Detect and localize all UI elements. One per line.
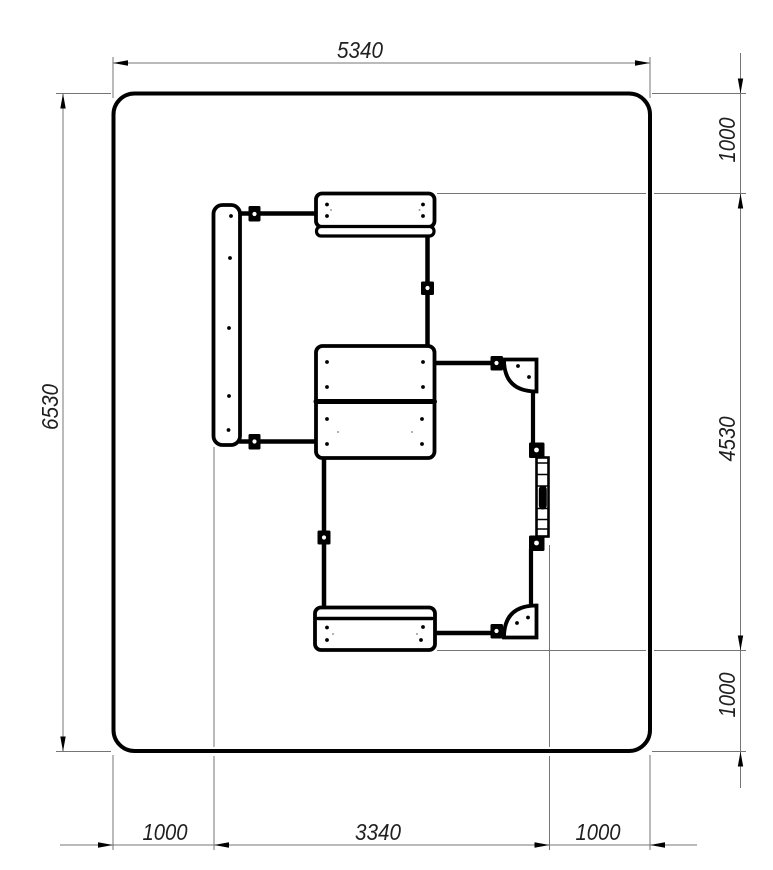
panel-left bbox=[214, 205, 241, 445]
dim-label-left-height: 6530 bbox=[37, 384, 63, 430]
post-clamp-hole bbox=[494, 629, 498, 633]
dim-label-right-equipment-height: 4530 bbox=[714, 417, 740, 462]
climber-ladder bbox=[537, 458, 549, 537]
ladder-grip-bar bbox=[539, 486, 547, 510]
post-clamp-hole bbox=[252, 439, 256, 443]
drawing-page: 5340 6530 1000 4530 1000 1000 3340 1000 bbox=[0, 0, 773, 870]
left-extension-lines bbox=[56, 94, 111, 752]
panel-top-edge-band bbox=[317, 227, 435, 237]
arrow-right-1 bbox=[738, 79, 743, 94]
panel-bottom bbox=[315, 608, 435, 651]
dim-label-right-bottom-offset: 1000 bbox=[714, 673, 740, 718]
arrow-bottom-2 bbox=[214, 842, 229, 848]
dim-label-top-width: 5340 bbox=[337, 37, 383, 63]
dim-label-bottom-right-offset: 1000 bbox=[576, 819, 621, 845]
dimensioned-plan-drawing: 5340 6530 1000 4530 1000 1000 3340 1000 bbox=[0, 0, 773, 870]
arrow-top-right bbox=[635, 60, 650, 66]
post-clamp-hole bbox=[322, 535, 326, 539]
arrow-right-4 bbox=[738, 752, 743, 767]
post-clamp-hole bbox=[425, 286, 429, 290]
dim-label-bottom-left-offset: 1000 bbox=[143, 819, 188, 845]
post-clamp-hole bbox=[494, 361, 498, 365]
dim-label-bottom-equipment-width: 3340 bbox=[355, 819, 401, 845]
arrow-left-down bbox=[60, 737, 65, 752]
arrow-right-2 bbox=[738, 194, 743, 209]
dim-label-right-top-offset: 1000 bbox=[714, 118, 740, 163]
arrow-bottom-1 bbox=[98, 842, 113, 848]
post-clamp-hole bbox=[534, 541, 539, 546]
arrow-left-up bbox=[60, 94, 65, 109]
panel-top bbox=[316, 194, 435, 228]
arrow-bottom-3 bbox=[535, 842, 550, 848]
arrow-bottom-4 bbox=[650, 842, 665, 848]
arrow-right-3 bbox=[738, 636, 743, 651]
post-clamp-hole bbox=[534, 448, 539, 453]
arrow-top-left bbox=[113, 60, 128, 66]
post-clamp-hole bbox=[252, 212, 256, 216]
